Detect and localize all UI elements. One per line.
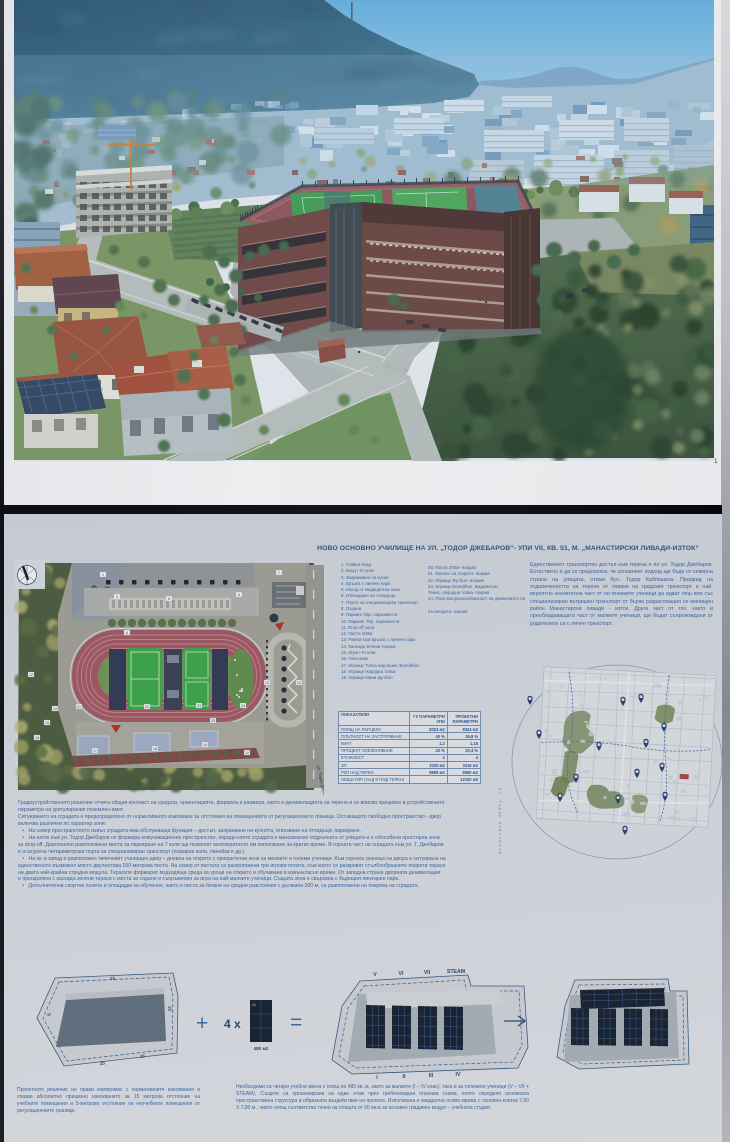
svg-text:1: 1 (102, 573, 104, 577)
svg-text:13: 13 (265, 681, 269, 685)
svg-text:I: I (376, 1075, 378, 1081)
svg-text:5: 5 (168, 597, 170, 601)
svg-text:480 м2: 480 м2 (254, 1046, 269, 1051)
svg-text:22: 22 (145, 705, 149, 709)
svg-text:24: 24 (241, 704, 245, 708)
svg-text:=: = (290, 1011, 302, 1034)
svg-text:15: 15 (110, 976, 116, 981)
svg-text:VII: VII (424, 970, 431, 976)
svg-text:+: + (196, 1012, 208, 1035)
svg-text:25: 25 (100, 1060, 106, 1066)
svg-text:IV: IV (456, 1072, 461, 1078)
svg-text:10: 10 (297, 681, 301, 685)
svg-text:7: 7 (278, 571, 280, 575)
svg-text:12: 12 (29, 673, 33, 677)
svg-text:23: 23 (197, 704, 201, 708)
svg-text:15: 15 (167, 1006, 172, 1012)
svg-text:3: 3 (116, 595, 118, 599)
svg-text:STEAM: STEAM (447, 969, 465, 975)
svg-text:II: II (403, 1074, 406, 1080)
svg-text:18: 18 (153, 747, 157, 751)
svg-text:III: III (429, 1073, 434, 1079)
svg-text:19: 19 (203, 743, 207, 747)
svg-text:21: 21 (77, 705, 81, 709)
svg-text:60: 60 (252, 1003, 256, 1007)
svg-text:15: 15 (45, 721, 49, 725)
svg-text:25: 25 (211, 719, 215, 723)
svg-text:6: 6 (238, 593, 240, 597)
svg-text:VI: VI (399, 971, 404, 977)
svg-text:14: 14 (53, 707, 57, 711)
svg-text:V: V (373, 972, 377, 978)
svg-text:4 x: 4 x (224, 1017, 241, 1031)
svg-text:12: 12 (245, 751, 249, 755)
svg-text:16: 16 (35, 736, 39, 740)
svg-text:8: 8 (126, 631, 128, 635)
svg-text:15: 15 (140, 1053, 146, 1059)
svg-text:17: 17 (93, 749, 97, 753)
